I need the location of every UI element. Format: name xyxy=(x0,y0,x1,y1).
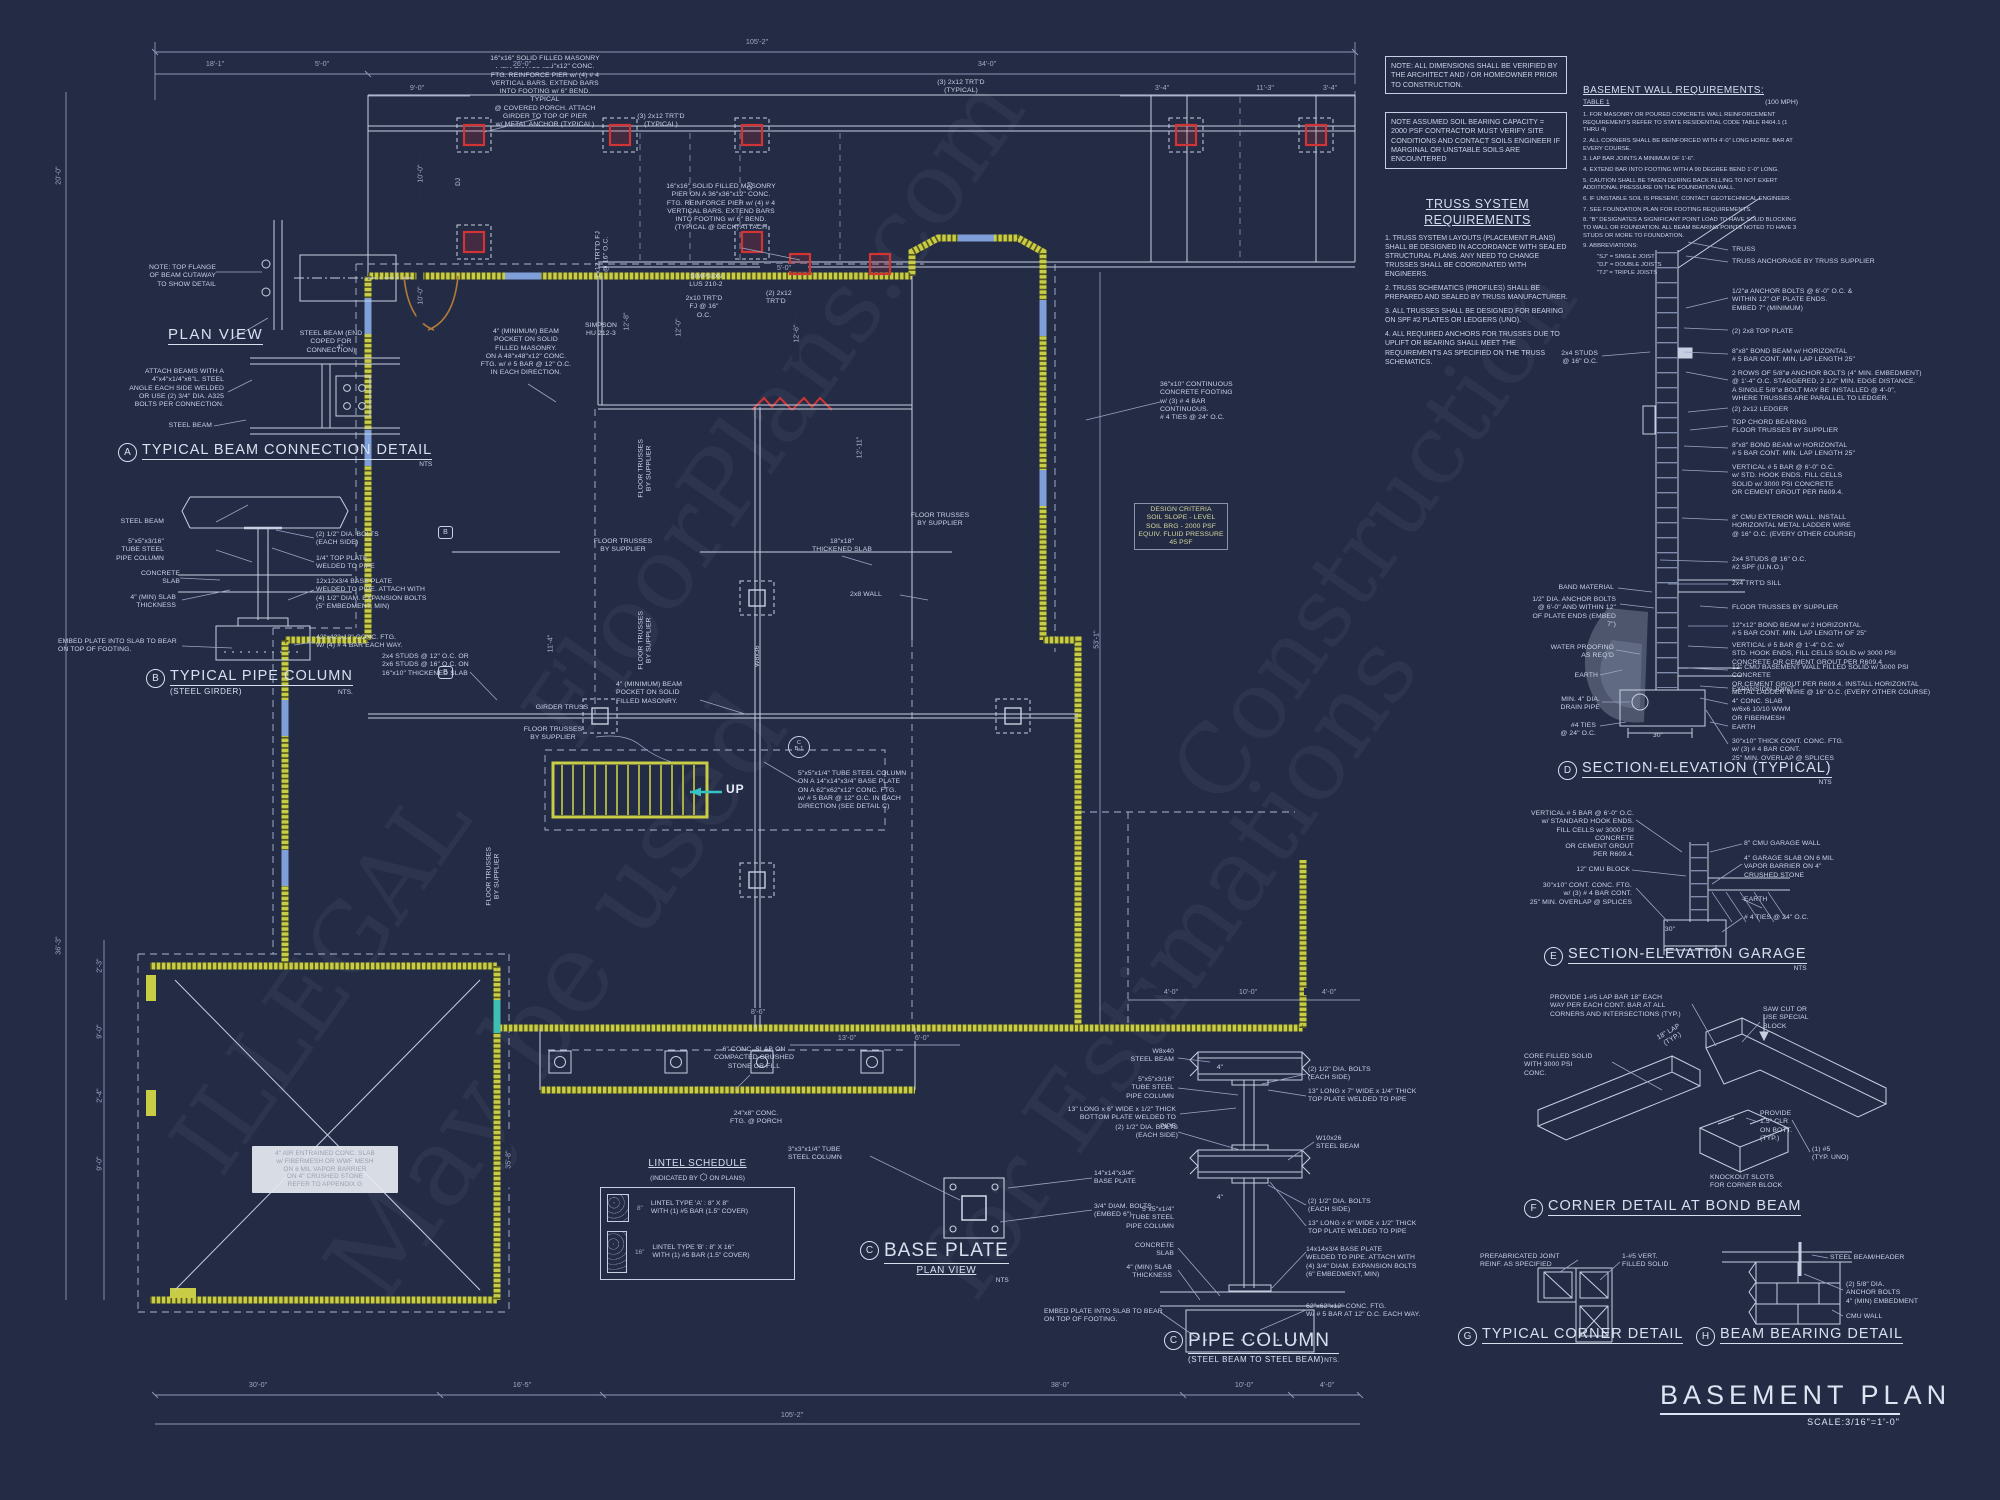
detail-b-drawing xyxy=(178,497,352,660)
sheet-title: BASEMENT PLAN xyxy=(1660,1380,1900,1415)
detail-a-drawing xyxy=(250,220,414,434)
detail-h-title: BEAM BEARING DETAIL xyxy=(1720,1326,1903,1344)
lintel-schedule-title: LINTEL SCHEDULE xyxy=(600,1158,795,1169)
sheet-scale: SCALE:3/16"=1'-0" xyxy=(1660,1417,1900,1427)
lintel-row-a: 8" LINTEL TYPE 'A' : 8" X 8" WITH (1) #5… xyxy=(607,1194,788,1222)
leader-lines xyxy=(180,118,1843,1340)
truss-requirement-item: 2. TRUSS SCHEMATICS (PROFILES) SHALL BE … xyxy=(1385,284,1570,302)
lintel-hexagon-icon: ⬡ xyxy=(700,1172,708,1182)
detail-d-circle-letter: D xyxy=(1558,761,1577,780)
detail-e-title: SECTION-ELEVATION GARAGE xyxy=(1568,946,1807,964)
garage-brace xyxy=(175,980,480,1290)
door-swing-arcs xyxy=(404,276,458,330)
truss-requirement-item: 3. ALL TRUSSES SHALL BE DESIGNED FOR BEA… xyxy=(1385,307,1570,325)
wall-requirement-item: 2. ALL CORNERS SHALL BE REINFORCED WITH … xyxy=(1583,138,1798,153)
wall-requirement-item: 7. SEE FOUNDATION PLAN FOR FOOTING REQUI… xyxy=(1583,207,1798,215)
detail-c2-title: PIPE COLUMN xyxy=(1188,1330,1339,1354)
detail-c2-circle-letter: C xyxy=(1164,1331,1183,1350)
detail-title-c2: C PIPE COLUMN (STEEL BEAM TO STEEL BEAM)… xyxy=(1164,1330,1339,1364)
detail-a-circle-letter: A xyxy=(118,443,137,462)
wall-requirement-item: 5. CAUTION SHALL BE TAKEN DURING BACK FI… xyxy=(1583,178,1798,193)
note-soil-text: NOTE ASSUMED SOIL BEARING CAPACITY = 200… xyxy=(1391,117,1560,163)
wall-requirement-item: 3. LAP BAR JOINTS A MINIMUM OF 1'-6". xyxy=(1583,156,1798,164)
lintel-type-b-dim: 16" xyxy=(635,1249,644,1256)
detail-g-circle-letter: G xyxy=(1458,1327,1477,1346)
lintel-type-a-dim: 8" xyxy=(637,1205,643,1212)
detail-title-e: E SECTION-ELEVATION GARAGE NTS xyxy=(1544,946,1807,972)
footing-dashes xyxy=(138,264,1295,1312)
detail-e-nts: NTS xyxy=(1794,965,1807,972)
detail-e-drawing xyxy=(1664,842,1790,955)
detail-f-drawing xyxy=(1538,1014,1886,1172)
wall-requirement-item: 6. IF UNSTABLE SOIL IS PRESENT, CONTACT … xyxy=(1583,196,1798,204)
wall-requirement-item: 1. FOR MASONRY OR POURED CONCRETE WALL R… xyxy=(1583,112,1798,135)
wall-requirements-wind: (100 MPH) xyxy=(1765,99,1798,108)
lintel-indicated-line: (INDICATED BY ⬡ ON PLANS) xyxy=(600,1172,795,1183)
wall-requirement-item: 9. ABBREVIATIONS: xyxy=(1583,243,1798,251)
detail-c1-title: BASE PLATE xyxy=(884,1240,1009,1264)
lintel-schedule: LINTEL SCHEDULE (INDICATED BY ⬡ ON PLANS… xyxy=(600,1158,795,1280)
abbreviation-item: "DJ" = DOUBLE JOISTS xyxy=(1597,262,1798,270)
lintel-type-a-label: LINTEL TYPE 'A' : 8" X 8" WITH (1) #5 BA… xyxy=(651,1200,748,1217)
porch-columns xyxy=(540,1028,915,1090)
detail-h-drawing xyxy=(1722,1242,1852,1324)
detail-a-nts: NTS xyxy=(419,461,432,468)
plan-view-label: PLAN VIEW xyxy=(168,326,263,345)
detail-title-f: F CORNER DETAIL AT BOND BEAM xyxy=(1524,1198,1801,1218)
detail-f-circle-letter: F xyxy=(1524,1199,1543,1218)
lintel-type-a-icon xyxy=(607,1194,629,1222)
detail-b-sub: (STEEL GIRDER) xyxy=(170,687,242,696)
wall-requirement-item: 4. EXTEND BAR INTO FOOTING WITH A 90 DEG… xyxy=(1583,167,1798,175)
detail-c1-nts: NTS xyxy=(996,1277,1009,1284)
abbreviation-item: "TJ" = TRIPLE JOISTS xyxy=(1597,270,1798,278)
detail-e-circle-letter: E xyxy=(1544,947,1563,966)
wall-requirements-title: BASEMENT WALL REQUIREMENTS: xyxy=(1583,84,1798,97)
detail-title-a: A TYPICAL BEAM CONNECTION DETAIL NTS xyxy=(118,442,432,468)
truss-requirements: TRUSS SYSTEM REQUIREMENTS 1. TRUSS SYSTE… xyxy=(1385,196,1570,372)
note-dimensions: NOTE: ALL DIMENSIONS SHALL BE VERIFIED B… xyxy=(1385,56,1567,94)
detail-title-c1: C BASE PLATE PLAN VIEW NTS xyxy=(860,1240,1009,1284)
detail-d-nts: NTS xyxy=(1819,779,1832,786)
beam-pocket-marks xyxy=(752,398,832,410)
detail-d-drawing xyxy=(1585,198,1760,738)
detail-a-title: TYPICAL BEAM CONNECTION DETAIL xyxy=(142,442,432,460)
detail-title-g: G TYPICAL CORNER DETAIL xyxy=(1458,1326,1683,1346)
lintel-type-b-icon xyxy=(607,1231,627,1273)
truss-requirement-item: 4. ALL REQUIRED ANCHORS FOR TRUSSES DUE … xyxy=(1385,330,1570,366)
detail-b-circle-letter: B xyxy=(146,669,165,688)
detail-h-circle-letter: H xyxy=(1696,1327,1715,1346)
walls xyxy=(146,238,1303,1300)
window-markers xyxy=(285,238,1043,886)
detail-b-title: TYPICAL PIPE COLUMN xyxy=(170,668,353,686)
column-markers xyxy=(583,581,1030,897)
truss-requirement-item: 1. TRUSS SYSTEM LAYOUTS (PLACEMENT PLANS… xyxy=(1385,234,1570,279)
detail-c1-circle-letter: C xyxy=(860,1241,879,1260)
detail-title-b: B TYPICAL PIPE COLUMN (STEEL GIRDER) NTS… xyxy=(146,668,353,696)
detail-c1-drawing xyxy=(944,1178,1004,1238)
stairs xyxy=(553,763,707,817)
detail-f-title: CORNER DETAIL AT BOND BEAM xyxy=(1548,1198,1801,1216)
masonry-piers xyxy=(457,118,1333,274)
detail-b-nts: NTS. xyxy=(338,689,353,696)
detail-c2-drawing xyxy=(1160,1052,1345,1352)
detail-g-title: TYPICAL CORNER DETAIL xyxy=(1482,1326,1683,1344)
basement-wall-requirements: BASEMENT WALL REQUIREMENTS: TABLE 1 (100… xyxy=(1583,84,1798,278)
title-block: BASEMENT PLAN SCALE:3/16"=1'-0" xyxy=(1660,1380,1900,1427)
detail-d-title: SECTION-ELEVATION (TYPICAL) xyxy=(1582,760,1832,778)
blueprint-sheet: FloorPlans.comMay be usedfor Estimations… xyxy=(0,0,2000,1500)
detail-title-h: H BEAM BEARING DETAIL xyxy=(1696,1326,1903,1346)
lintel-table: 8" LINTEL TYPE 'A' : 8" X 8" WITH (1) #5… xyxy=(600,1187,795,1280)
detail-c1-sub: PLAN VIEW xyxy=(916,1265,976,1276)
abbreviation-item: "SJ" = SINGLE JOIST xyxy=(1597,254,1798,262)
wall-requirements-subtitle: TABLE 1 xyxy=(1583,99,1610,108)
lintel-indicated-suffix: ON PLANS) xyxy=(709,1175,745,1182)
lintel-type-b-label: LINTEL TYPE 'B' : 8" X 16" WITH (1) #5 B… xyxy=(652,1244,749,1261)
wall-requirement-item: 8. "B" DESIGNATES A SIGNIFICANT POINT LO… xyxy=(1583,217,1798,240)
detail-title-d: D SECTION-ELEVATION (TYPICAL) NTS xyxy=(1558,760,1832,786)
note-soil: NOTE ASSUMED SOIL BEARING CAPACITY = 200… xyxy=(1385,112,1567,169)
note-dimensions-text: NOTE: ALL DIMENSIONS SHALL BE VERIFIED B… xyxy=(1391,61,1557,89)
interior-lines xyxy=(368,276,1078,1028)
truss-requirements-title: TRUSS SYSTEM REQUIREMENTS xyxy=(1385,196,1570,229)
detail-c2-sub: (STEEL BEAM TO STEEL BEAM) xyxy=(1188,1355,1324,1364)
detail-c2-nts: NTS. xyxy=(1324,1357,1339,1364)
deck-lines xyxy=(368,95,1355,276)
lintel-indicated-prefix: (INDICATED BY xyxy=(650,1175,698,1182)
lintel-row-b: 16" LINTEL TYPE 'B' : 8" X 16" WITH (1) … xyxy=(607,1231,788,1273)
